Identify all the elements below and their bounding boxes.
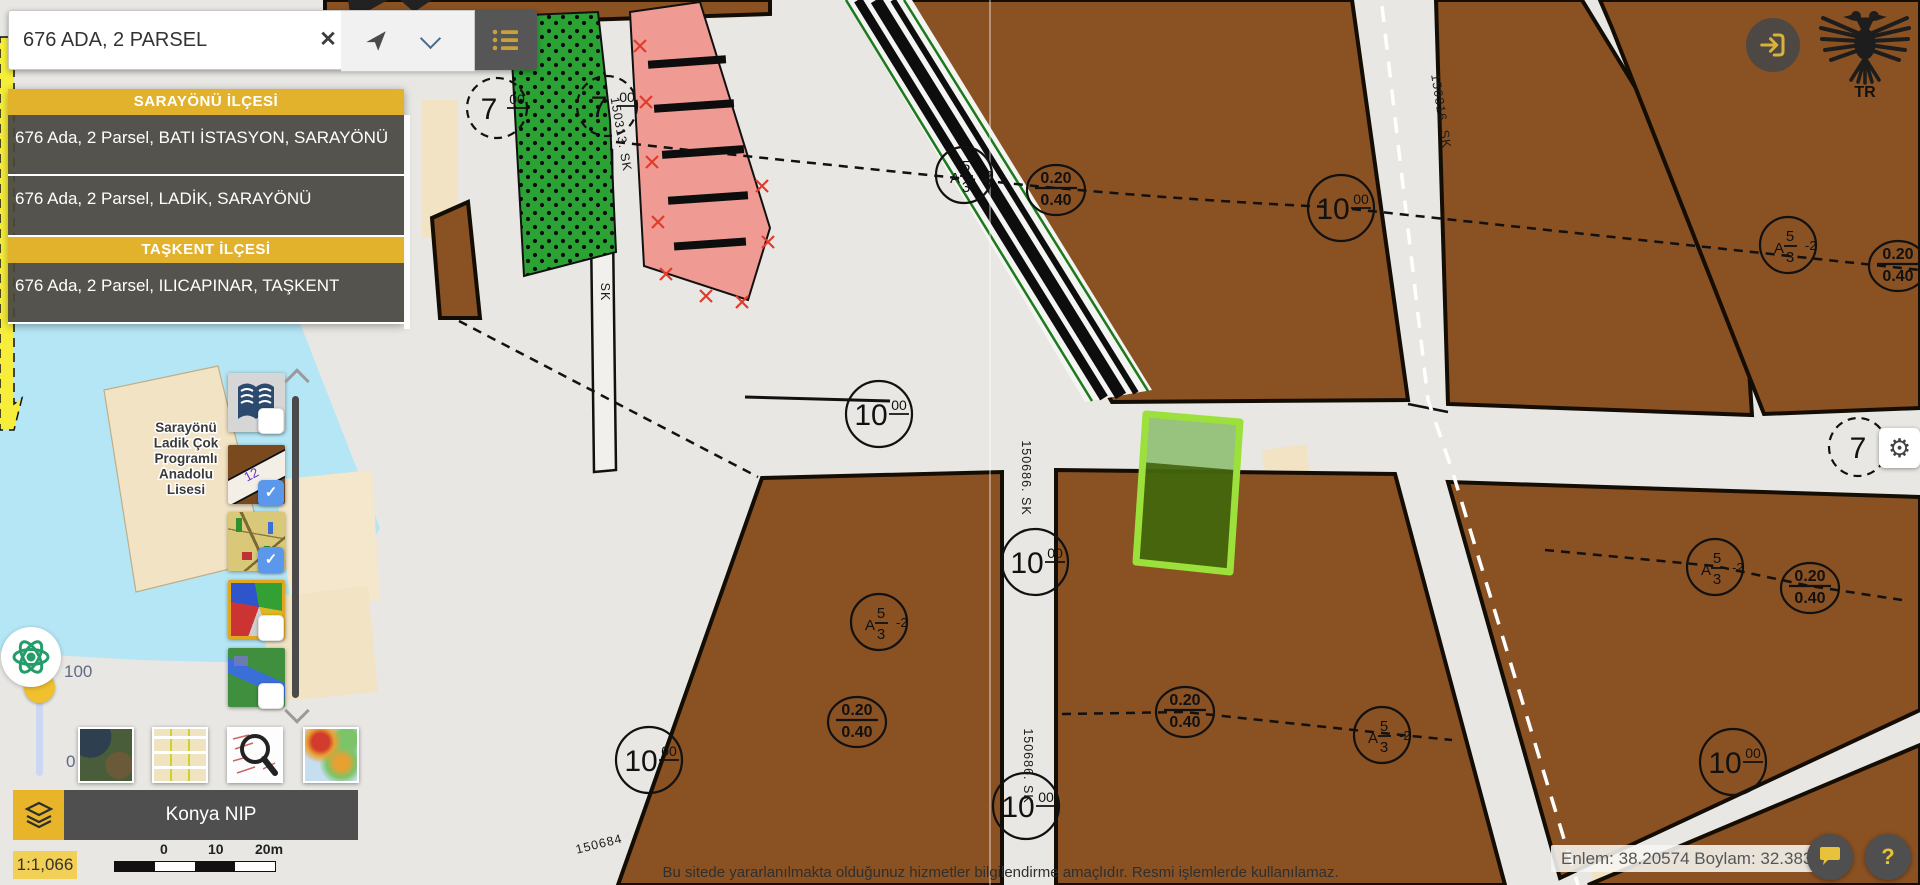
result-group-header[interactable]: TAŞKENT İLÇESİ — [8, 237, 404, 263]
svg-text:5: 5 — [962, 158, 970, 175]
svg-text:0.20: 0.20 — [1040, 170, 1071, 187]
svg-text:10: 10 — [1708, 747, 1741, 780]
svg-text:5: 5 — [1713, 550, 1721, 567]
svg-text:10: 10 — [1010, 547, 1043, 580]
coordinates-readout: Enlem: 38.20574 Boylam: 32.38381 — [1551, 845, 1841, 872]
svg-text:150686. SK: 150686. SK — [1019, 440, 1033, 515]
svg-text:0.40: 0.40 — [1169, 714, 1200, 731]
svg-text:10: 10 — [1316, 193, 1349, 226]
svg-text:0.20: 0.20 — [1794, 568, 1825, 585]
svg-text:Anadolu: Anadolu — [159, 467, 213, 482]
svg-text:A: A — [1701, 562, 1711, 579]
svg-text:0.40: 0.40 — [1040, 192, 1071, 209]
layer-scrollbar[interactable] — [292, 396, 299, 698]
app-logo[interactable] — [1, 627, 61, 687]
emblem-text: TR — [1854, 84, 1876, 100]
svg-text:0.20: 0.20 — [1169, 692, 1200, 709]
svg-text:7: 7 — [591, 91, 608, 124]
svg-text:00: 00 — [891, 397, 907, 413]
svg-text:3: 3 — [1713, 571, 1721, 588]
svg-text:5: 5 — [877, 605, 885, 622]
svg-text:00: 00 — [1745, 745, 1761, 761]
svg-text:10: 10 — [854, 399, 887, 432]
result-item[interactable]: 676 Ada, 2 Parsel, LADİK, SARAYÖNÜ — [8, 176, 404, 237]
basemap-parcels[interactable] — [152, 727, 208, 783]
layer-checkbox[interactable]: ✓ — [258, 683, 284, 709]
svg-text:00: 00 — [1047, 545, 1063, 561]
results-scrollbar[interactable] — [404, 115, 410, 329]
basemap-satellite[interactable] — [78, 727, 134, 783]
svg-text:0.20: 0.20 — [1882, 246, 1913, 263]
scalebar-tick: 20m — [255, 841, 283, 857]
svg-text:Sarayönü: Sarayönü — [155, 420, 217, 435]
magnifier-icon — [229, 729, 281, 781]
svg-text:3: 3 — [1786, 249, 1794, 266]
svg-text:7: 7 — [481, 93, 498, 126]
disclaimer-text: Bu sitede yararlanılmakta olduğunuz hizm… — [662, 864, 1338, 881]
feedback-button[interactable] — [1807, 834, 1853, 880]
svg-text:3: 3 — [962, 179, 970, 196]
results-list-button[interactable] — [475, 10, 537, 70]
svg-text:3: 3 — [1380, 739, 1388, 756]
svg-text:0.40: 0.40 — [1794, 590, 1825, 607]
svg-text:-2: -2 — [981, 168, 993, 183]
atom-icon — [9, 635, 53, 679]
double-eagle-icon: TR — [1815, 4, 1915, 100]
result-item[interactable]: 676 Ada, 2 Parsel, ILICAPINAR, TAŞKENT — [8, 263, 404, 324]
svg-text:-2: -2 — [1732, 560, 1744, 575]
svg-text:-2: -2 — [896, 615, 908, 630]
chevron-down-icon[interactable] — [420, 27, 441, 48]
question-icon: ? — [1881, 844, 1894, 870]
layer-checkbox[interactable]: ✓ — [258, 480, 284, 506]
basemap-cadastre[interactable] — [227, 727, 283, 783]
svg-text:A: A — [1774, 240, 1784, 257]
search-results: SARAYÖNÜ İLÇESİ 676 Ada, 2 Parsel, BATI … — [8, 89, 404, 324]
chat-icon — [1818, 846, 1842, 868]
agency-emblem: TR — [1815, 4, 1915, 105]
slider-min-label: 0 — [66, 752, 75, 772]
svg-text:3: 3 — [877, 626, 885, 643]
basemap-heatmap[interactable] — [303, 727, 359, 783]
search-bar: ✕ — [8, 10, 537, 70]
svg-text:00: 00 — [1038, 789, 1054, 805]
scale-ratio-badge: 1:1,066 — [13, 851, 77, 879]
result-item[interactable]: 676 Ada, 2 Parsel, BATI İSTASYON, SARAYÖ… — [8, 115, 404, 176]
locate-icon[interactable] — [363, 28, 389, 54]
svg-text:A: A — [950, 170, 960, 187]
result-group-header[interactable]: SARAYÖNÜ İLÇESİ — [8, 89, 404, 115]
search-tools — [341, 10, 475, 72]
svg-text:00: 00 — [1353, 191, 1369, 207]
svg-text:A: A — [1368, 730, 1378, 747]
slider-max-label: 100 — [64, 662, 92, 682]
svg-text:00: 00 — [509, 91, 525, 107]
settings-button[interactable]: ⚙ — [1879, 428, 1920, 468]
search-input[interactable] — [8, 10, 341, 70]
svg-text:150686. SK: 150686. SK — [1021, 728, 1035, 803]
svg-text:-2: -2 — [1399, 728, 1411, 743]
clear-search-icon[interactable]: ✕ — [316, 28, 340, 52]
svg-text:Lisesi: Lisesi — [167, 482, 205, 497]
svg-text:0.20: 0.20 — [841, 702, 872, 719]
svg-text:10: 10 — [624, 745, 657, 778]
svg-text:-2: -2 — [1805, 238, 1817, 253]
layer-checkbox[interactable]: ✓ — [258, 547, 284, 573]
gear-icon: ⚙ — [1888, 433, 1911, 464]
svg-text:5: 5 — [1380, 718, 1388, 735]
login-button[interactable] — [1746, 18, 1800, 72]
svg-text:5: 5 — [1786, 228, 1794, 245]
svg-text:SK: SK — [598, 283, 612, 302]
svg-text:0.40: 0.40 — [1882, 268, 1913, 285]
svg-text:Programlı: Programlı — [154, 451, 217, 466]
layer-checkbox[interactable]: ✓ — [258, 615, 284, 641]
login-icon — [1758, 30, 1788, 60]
scalebar-tick: 10 — [208, 841, 224, 857]
scale-bar — [114, 861, 276, 872]
layers-button[interactable] — [13, 790, 64, 840]
app-root: 10001000100010001000100070070070.200.400… — [0, 0, 1920, 885]
svg-text:7: 7 — [1850, 432, 1867, 465]
active-plan-bar[interactable]: Konya NIP — [64, 790, 358, 840]
svg-text:A: A — [865, 617, 875, 634]
svg-text:00: 00 — [661, 743, 677, 759]
svg-text:Ladik Çok: Ladik Çok — [154, 436, 219, 451]
layers-icon — [24, 801, 54, 829]
layer-checkbox[interactable]: ✓ — [258, 408, 284, 434]
svg-text:0.40: 0.40 — [841, 724, 872, 741]
scalebar-tick: 0 — [160, 841, 168, 857]
list-icon — [492, 28, 520, 52]
help-button[interactable]: ? — [1865, 834, 1911, 880]
